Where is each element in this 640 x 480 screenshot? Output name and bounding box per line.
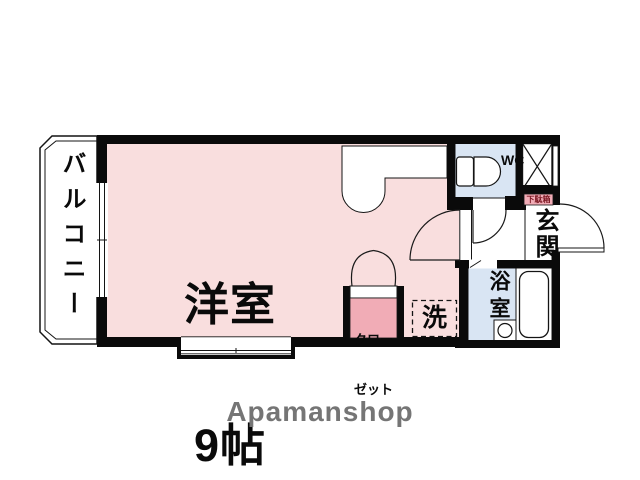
main-room-label: 洋室 9帖	[115, 186, 345, 480]
wall-bath-bottom	[455, 340, 560, 348]
entrance-door-arc	[560, 204, 604, 248]
bathroom-door-opening	[469, 260, 497, 269]
entrance-label: 玄関	[527, 208, 562, 260]
wall-top	[97, 135, 560, 144]
closet-label-line1: クロー	[347, 332, 400, 349]
closet-opening	[350, 286, 397, 298]
main-room-name: 洋室	[115, 281, 345, 328]
main-room-size: 9帖	[115, 422, 345, 469]
wall-below-wc-right	[505, 196, 526, 210]
apamanshop-logo: Apamanshop	[220, 396, 420, 428]
wall-below-wc-left	[447, 197, 473, 210]
balcony-label: バルコニー	[54, 151, 89, 326]
toilet-bowl-icon	[474, 157, 501, 186]
wc-label: WC	[501, 152, 517, 168]
bathtub-icon	[520, 272, 549, 338]
entrance-door-leaf	[558, 248, 604, 252]
pipe-space-side-panel	[553, 146, 558, 186]
shoe-cabinet-label: 下駄箱	[524, 194, 553, 205]
floor-plan-image: 洋室 9帖 バルコニー WC 玄関 浴室 クロー ゼット 洗 下駄箱 Apama…	[0, 0, 640, 480]
washer-space-label: 洗	[412, 301, 457, 335]
toilet-tank-icon	[457, 157, 474, 186]
bathroom-label: 浴室	[483, 270, 513, 324]
drain-circle-icon	[498, 324, 512, 338]
wall-bath-left	[459, 260, 468, 348]
